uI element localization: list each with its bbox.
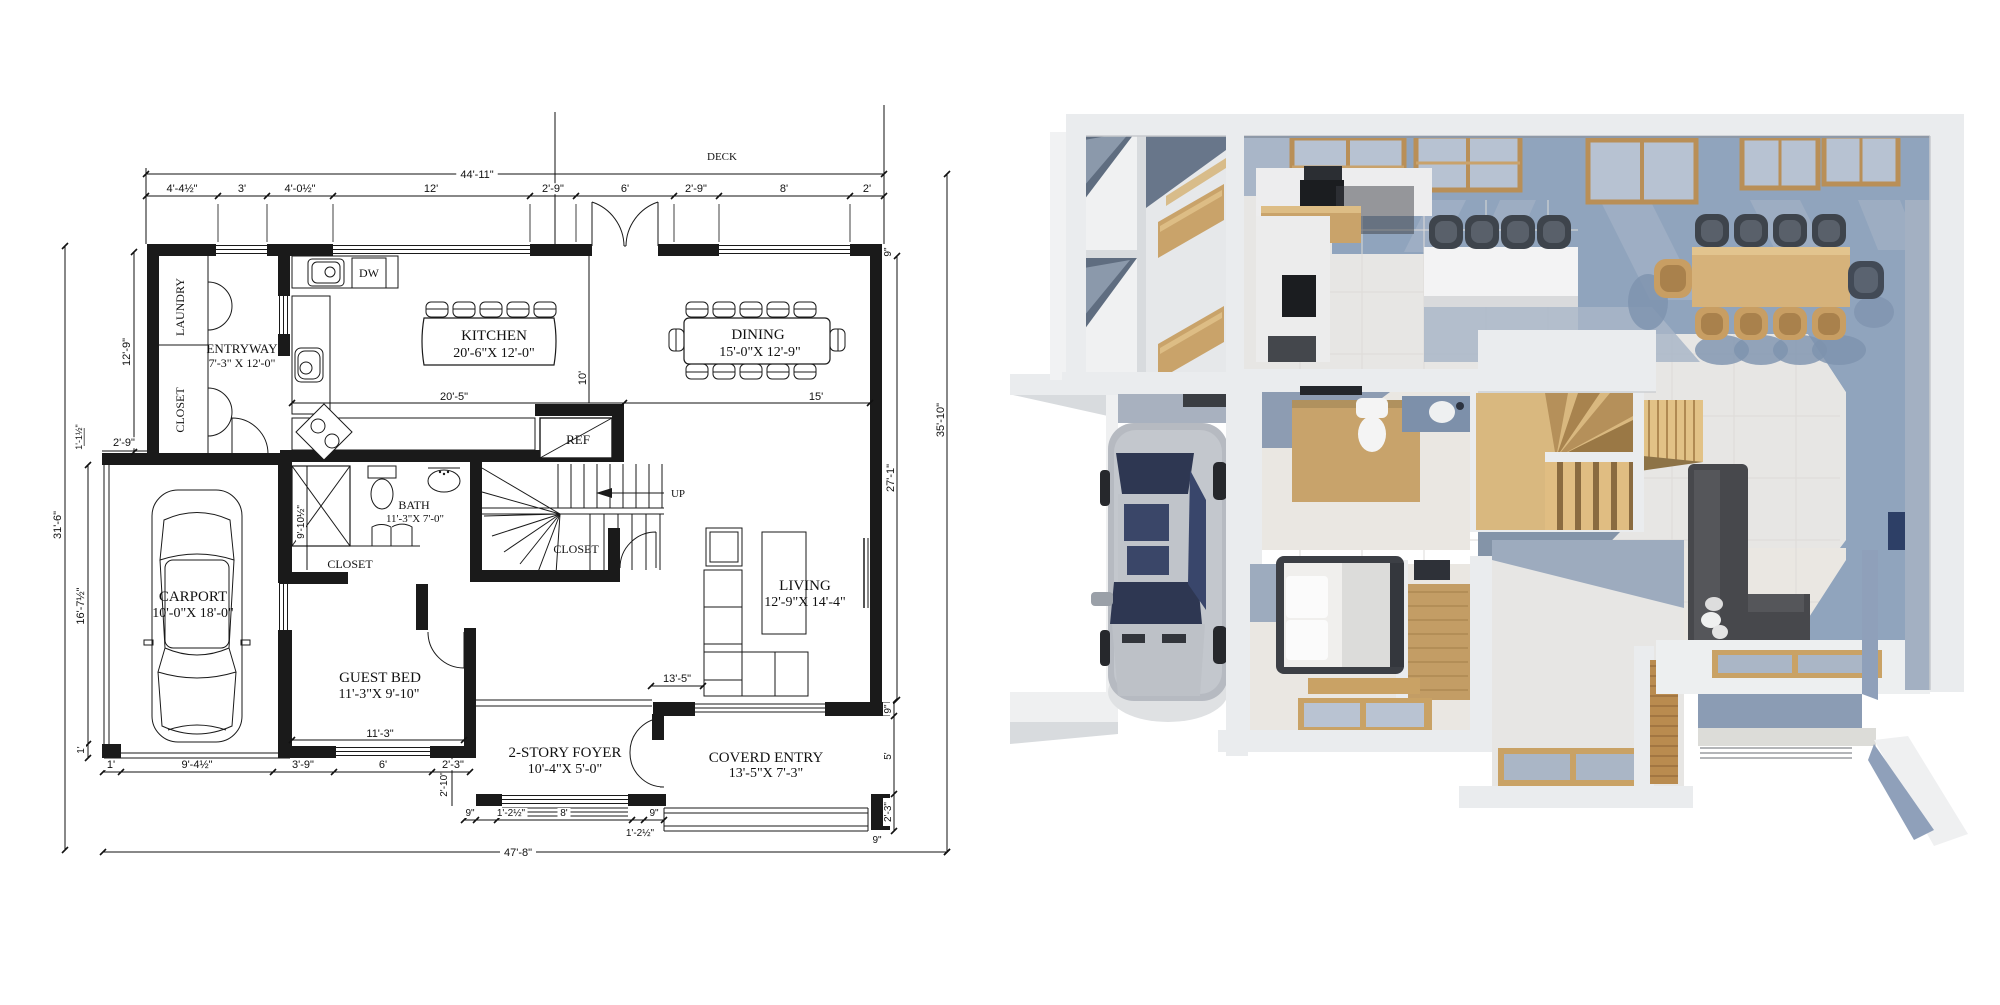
- svg-text:CARPORT: CARPORT: [159, 589, 227, 605]
- svg-text:15'-0"X 12'-9": 15'-0"X 12'-9": [719, 345, 800, 360]
- svg-text:10': 10': [577, 371, 589, 385]
- svg-text:9": 9": [872, 835, 882, 846]
- svg-text:8': 8': [560, 808, 568, 819]
- svg-text:CLOSET: CLOSET: [553, 542, 599, 556]
- svg-text:BATH: BATH: [398, 498, 430, 512]
- svg-text:15': 15': [809, 391, 823, 403]
- svg-text:9": 9": [883, 247, 894, 257]
- svg-text:8': 8': [780, 183, 788, 195]
- svg-text:LAUNDRY: LAUNDRY: [173, 278, 187, 336]
- svg-text:6': 6': [379, 759, 387, 771]
- svg-text:9": 9": [649, 808, 659, 819]
- svg-text:1'-1½": 1'-1½": [74, 424, 84, 449]
- svg-text:10'-0"X 18'-0": 10'-0"X 18'-0": [152, 606, 233, 621]
- svg-text:7'-3" X 12'-0": 7'-3" X 12'-0": [209, 356, 276, 370]
- svg-text:DW: DW: [359, 266, 380, 280]
- svg-text:13'-5": 13'-5": [663, 673, 691, 685]
- svg-text:13'-5"X 7'-3": 13'-5"X 7'-3": [729, 766, 803, 781]
- svg-text:20'-5": 20'-5": [440, 391, 468, 403]
- svg-text:CLOSET: CLOSET: [327, 557, 373, 571]
- svg-text:10'-4"X 5'-0": 10'-4"X 5'-0": [528, 762, 602, 777]
- svg-text:KITCHEN: KITCHEN: [461, 328, 527, 344]
- svg-text:CLOSET: CLOSET: [173, 387, 187, 433]
- svg-text:9": 9": [465, 808, 475, 819]
- svg-text:2-STORY FOYER: 2-STORY FOYER: [509, 745, 622, 761]
- svg-text:1'-2½": 1'-2½": [497, 808, 526, 819]
- svg-text:2'-10": 2'-10": [439, 771, 450, 797]
- svg-text:20'-6"X 12'-0": 20'-6"X 12'-0": [453, 346, 534, 361]
- svg-text:2': 2': [863, 183, 871, 195]
- svg-text:27'-1": 27'-1": [885, 464, 897, 492]
- svg-text:1': 1': [76, 746, 87, 754]
- svg-text:12'-9"X 14'-4": 12'-9"X 14'-4": [764, 595, 845, 610]
- svg-text:2'-9": 2'-9": [542, 183, 564, 195]
- svg-text:47'-8": 47'-8": [504, 847, 532, 859]
- svg-text:11'-3"X 9'-10": 11'-3"X 9'-10": [339, 687, 420, 702]
- svg-text:2'-9": 2'-9": [113, 437, 135, 449]
- svg-text:DECK: DECK: [707, 151, 737, 163]
- svg-text:2'-3": 2'-3": [442, 759, 464, 771]
- svg-text:1'-2½": 1'-2½": [626, 828, 655, 839]
- svg-text:9": 9": [883, 704, 894, 714]
- svg-text:11'-3"X 7'-0": 11'-3"X 7'-0": [386, 513, 444, 525]
- svg-text:DINING: DINING: [731, 327, 784, 343]
- svg-text:LIVING: LIVING: [779, 578, 831, 594]
- svg-text:11'-3": 11'-3": [366, 728, 393, 740]
- svg-text:4'-4½": 4'-4½": [166, 183, 197, 195]
- svg-text:2'-3": 2'-3": [883, 802, 894, 822]
- svg-text:12': 12': [424, 183, 438, 195]
- svg-text:3': 3': [238, 183, 246, 195]
- svg-text:1': 1': [107, 759, 115, 771]
- svg-text:12'-9": 12'-9": [121, 338, 133, 366]
- svg-text:6': 6': [621, 183, 629, 195]
- svg-text:31'-6": 31'-6": [52, 511, 64, 539]
- svg-text:5': 5': [883, 752, 894, 760]
- svg-text:REF: REF: [566, 432, 590, 447]
- svg-text:44'-11": 44'-11": [460, 169, 493, 181]
- svg-text:ENTRYWAY: ENTRYWAY: [206, 341, 278, 356]
- svg-text:16'-7½": 16'-7½": [75, 587, 87, 624]
- svg-text:COVERD ENTRY: COVERD ENTRY: [709, 750, 824, 766]
- svg-text:9'-4½": 9'-4½": [181, 759, 212, 771]
- svg-text:UP: UP: [671, 488, 685, 500]
- svg-text:2'-9": 2'-9": [685, 183, 707, 195]
- svg-text:GUEST BED: GUEST BED: [339, 670, 421, 686]
- svg-text:3'-9": 3'-9": [292, 759, 314, 771]
- svg-text:35'-10": 35'-10": [935, 403, 947, 437]
- svg-text:4'-0½": 4'-0½": [284, 183, 315, 195]
- svg-text:9'-10½": 9'-10½": [296, 505, 307, 539]
